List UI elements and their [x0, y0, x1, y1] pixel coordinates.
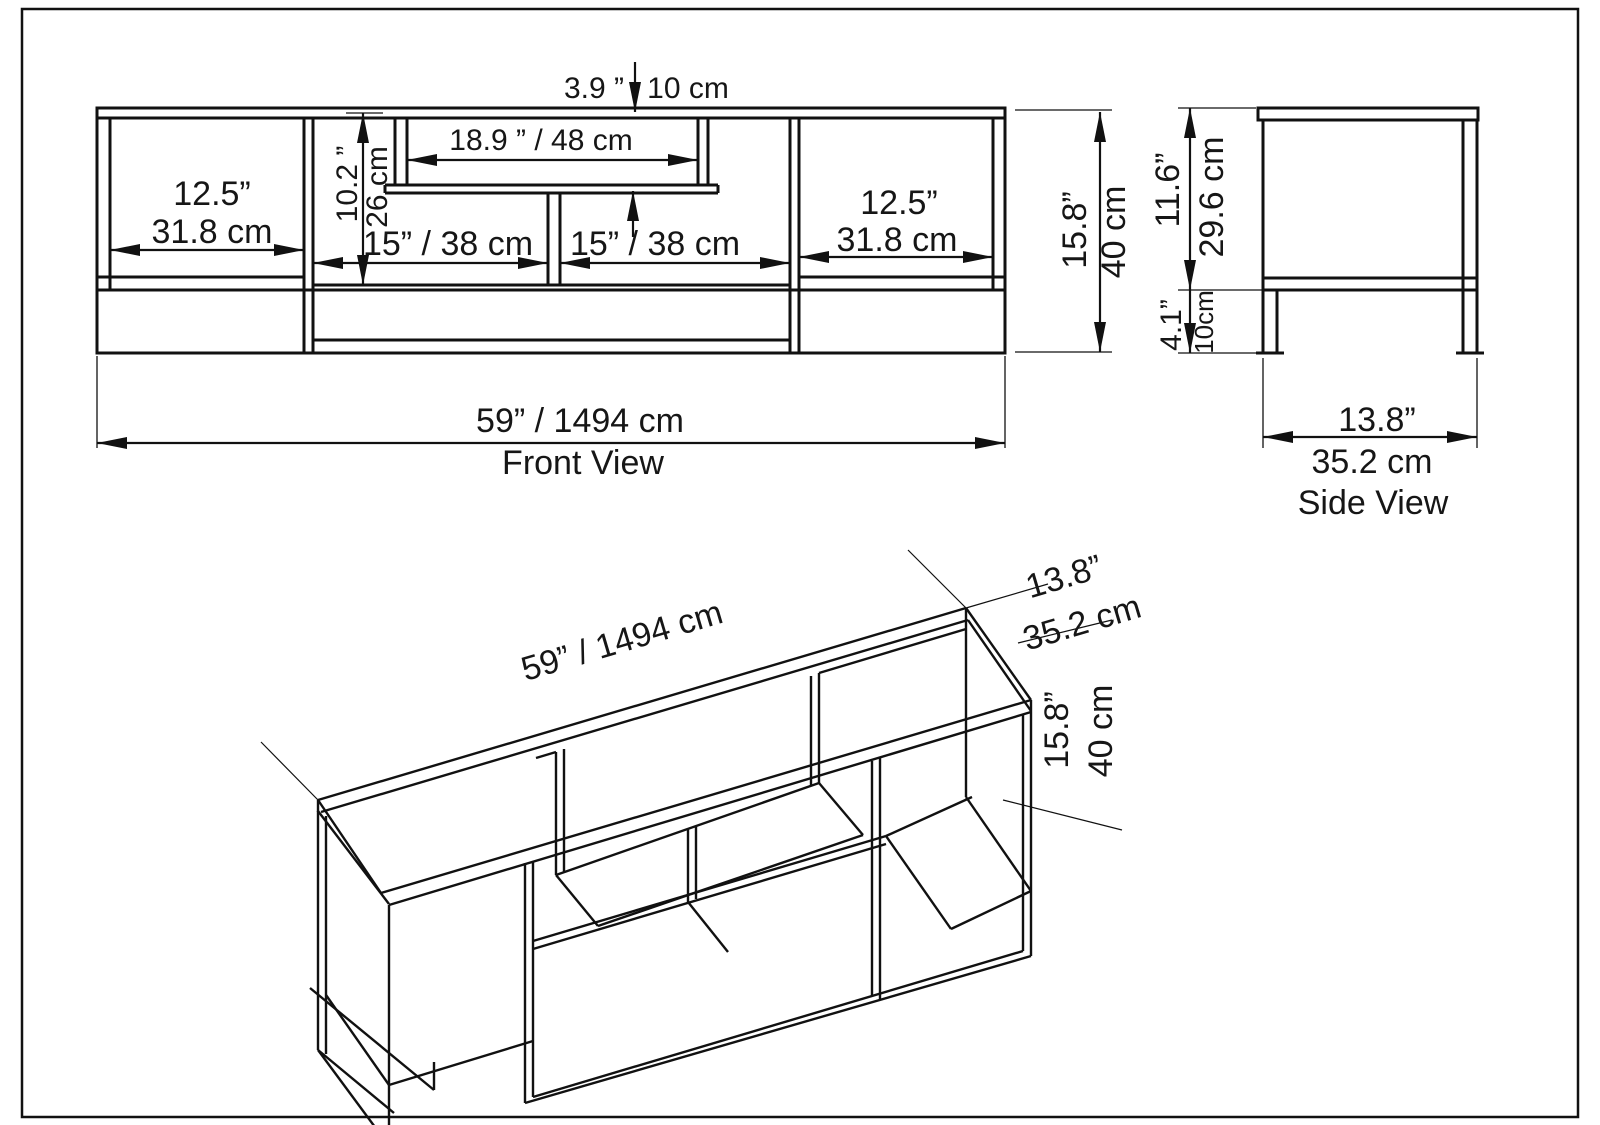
fv-title: Front View: [502, 446, 664, 480]
linework: [0, 0, 1600, 1125]
sv-title: Side View: [1298, 486, 1449, 520]
sv-dim-upper-height-cm: 29.6 cm: [1195, 137, 1229, 258]
fv-dim-right-compartment-inches: 12.5”: [860, 186, 938, 220]
fv-dim-inner-height-inches: 10.2 ”: [333, 146, 363, 223]
fv-dim-mid-right-compartment: 15” / 38 cm: [570, 227, 740, 261]
fv-dim-overall-width: 59” / 1494 cm: [476, 404, 684, 438]
fv-dim-inner-height-cm: 26 cm: [363, 146, 393, 228]
fv-dim-left-compartment-inches: 12.5”: [173, 177, 251, 211]
drawing-sheet: 3.9 ” 10 cm 18.9 ” / 48 cm 10.2 ” 26 cm …: [0, 0, 1600, 1125]
iso-dim-height-cm: 40 cm: [1084, 685, 1118, 778]
sv-dim-leg-height-cm: 10cm: [1191, 290, 1217, 354]
sv-dim-leg-height-inches: 4.1”: [1157, 299, 1187, 351]
sv-dim-depth-cm: 35.2 cm: [1312, 445, 1433, 479]
sv-dim-upper-height-inches: 11.6”: [1151, 153, 1185, 228]
fv-dim-right-compartment-cm: 31.8 cm: [837, 223, 958, 257]
fv-dim-top-gap-cm: 10 cm: [647, 74, 729, 104]
fv-dim-height-cm: 40 cm: [1097, 186, 1131, 279]
fv-dim-mid-left-compartment: 15” / 38 cm: [363, 227, 533, 261]
sv-dim-depth-inches: 13.8”: [1338, 403, 1416, 437]
fv-dim-height-inches: 15.8”: [1058, 191, 1092, 269]
iso-dim-height-inches: 15.8”: [1040, 691, 1074, 769]
fv-dim-top-gap-inches: 3.9 ”: [564, 74, 624, 104]
fv-dim-tv-opening: 18.9 ” / 48 cm: [449, 126, 632, 156]
fv-dim-left-compartment-cm: 31.8 cm: [152, 215, 273, 249]
